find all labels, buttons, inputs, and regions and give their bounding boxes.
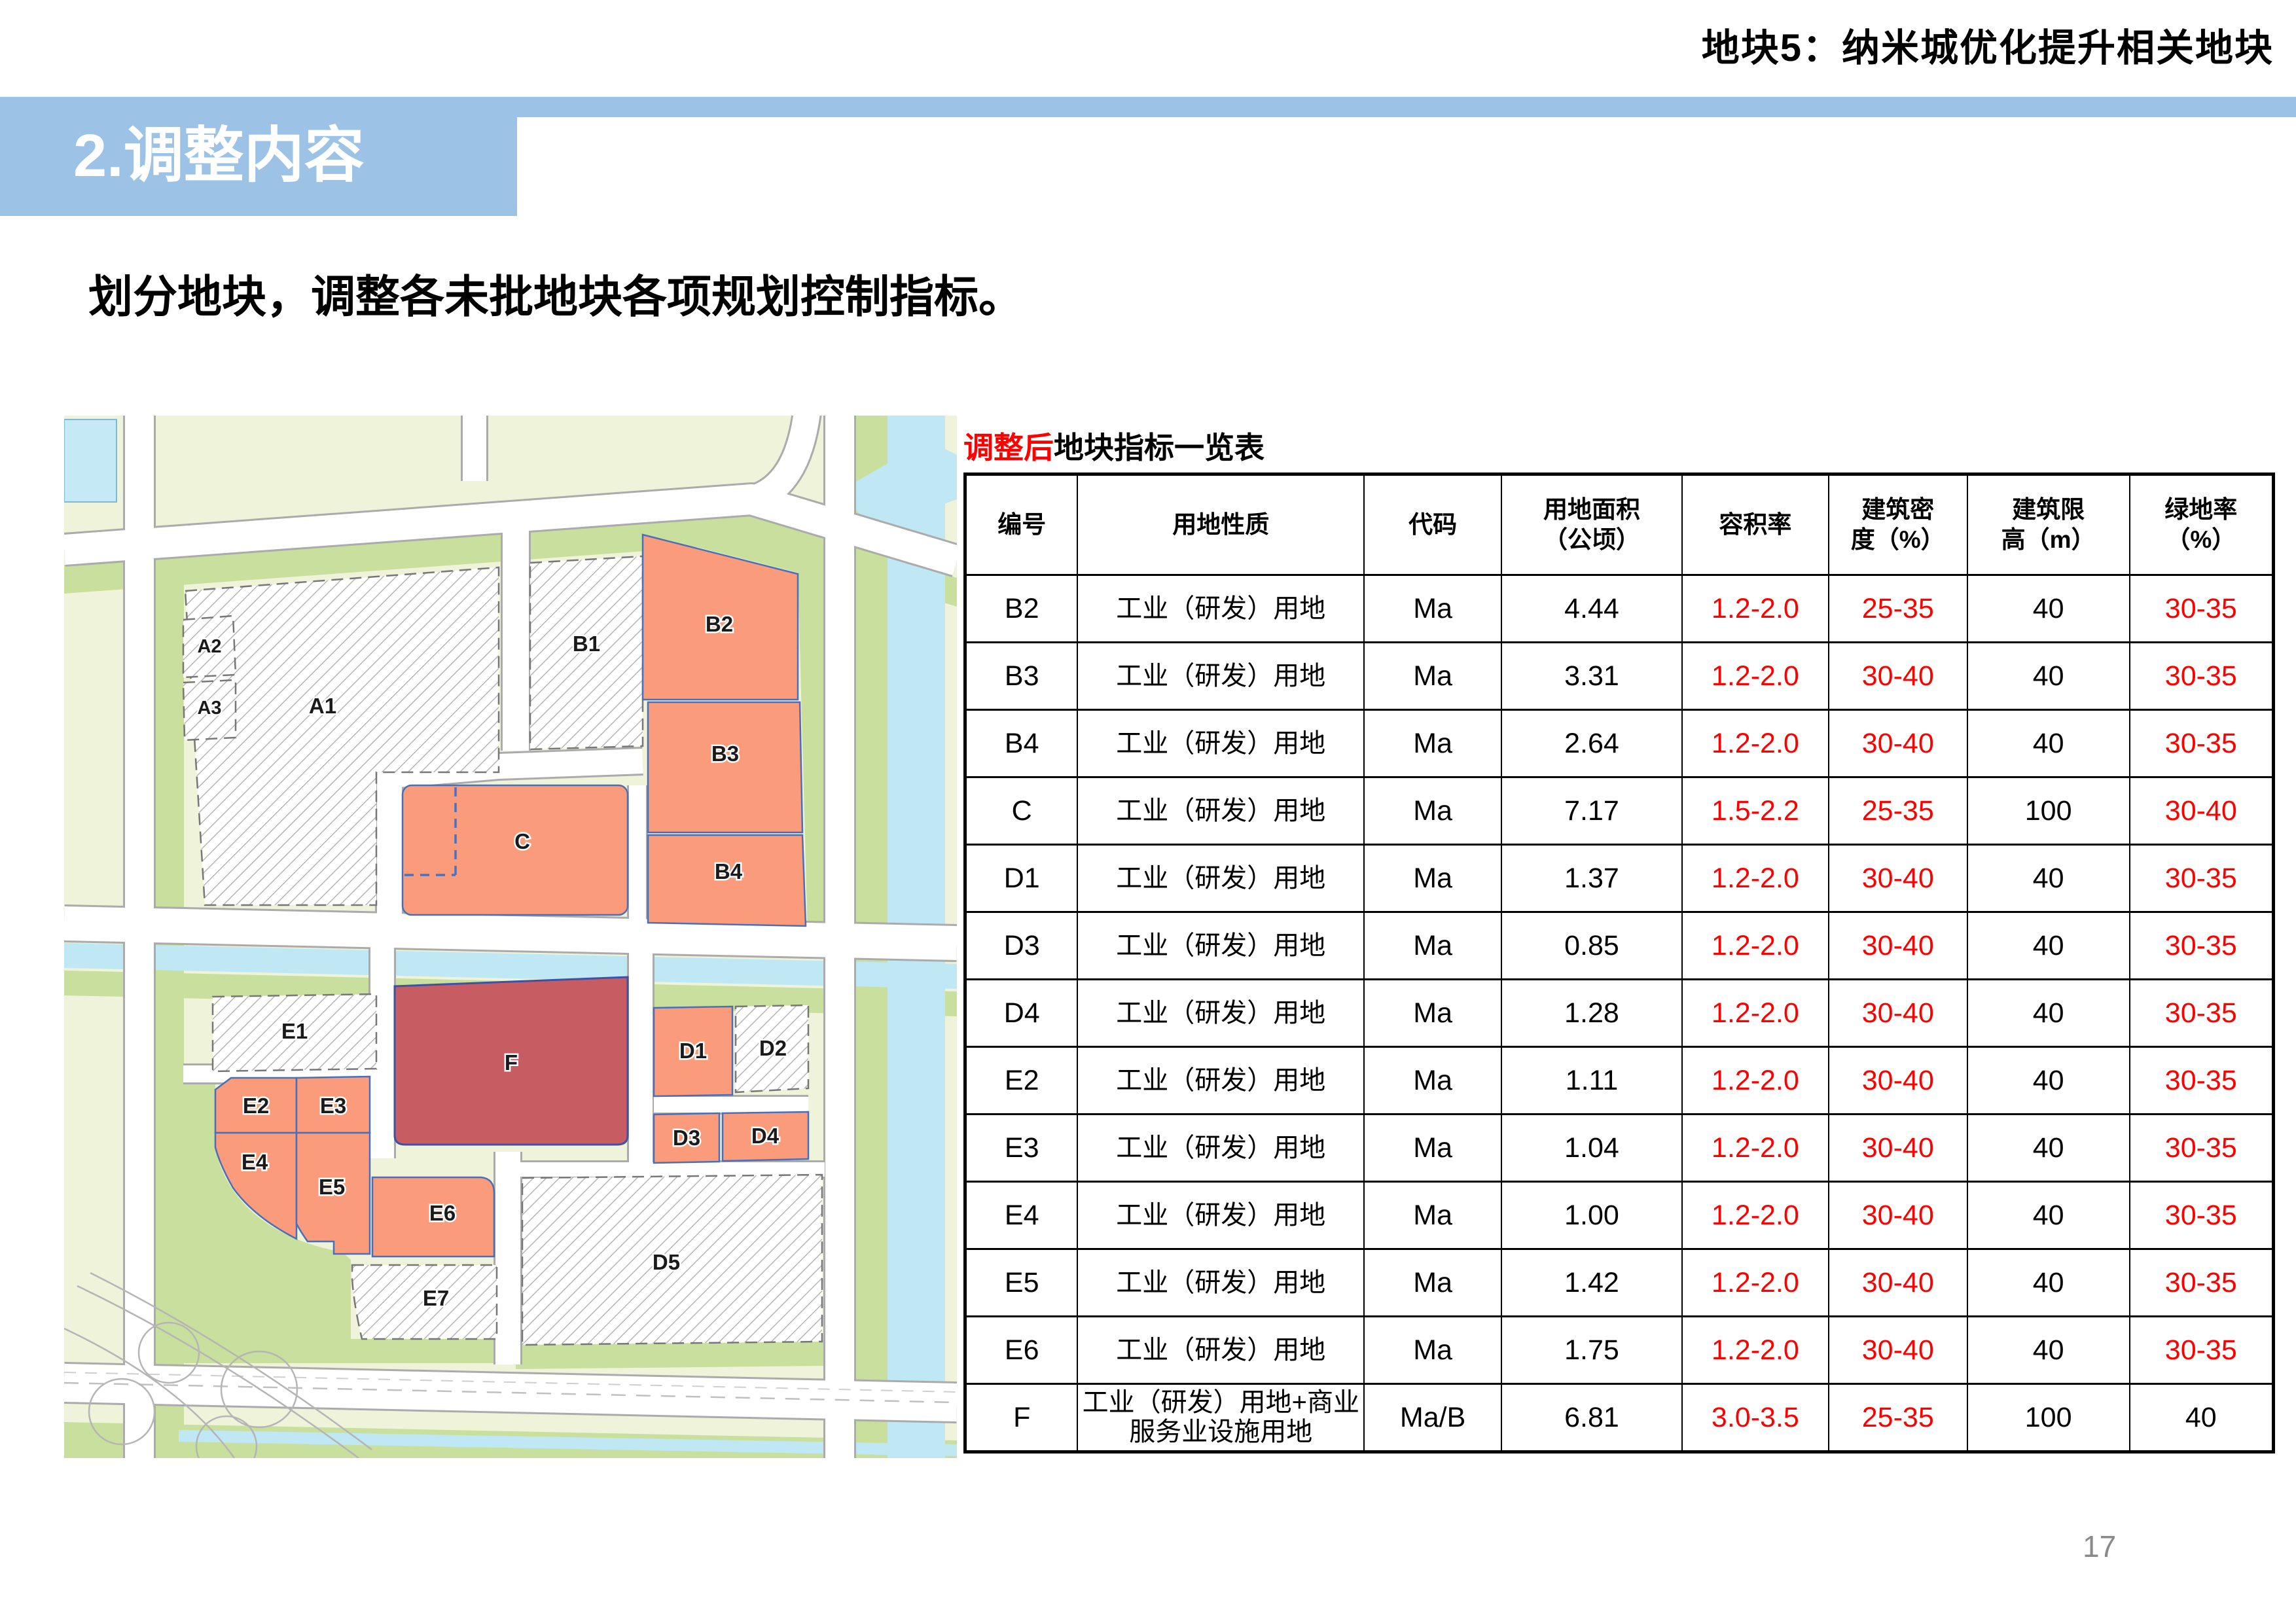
cell-C-density: 25-35	[1829, 777, 1967, 845]
page-number: 17	[2083, 1529, 2116, 1564]
cell-B4-use: 工业（研发）用地	[1077, 710, 1364, 777]
cell-E6-area: 1.75	[1501, 1317, 1682, 1384]
cell-E6-id: E6	[965, 1317, 1078, 1384]
cell-B3-id: B3	[965, 643, 1078, 710]
plot-label-a2: A2	[197, 636, 221, 657]
cell-B4-far: 1.2-2.0	[1682, 710, 1829, 777]
cell-D4-far: 1.2-2.0	[1682, 980, 1829, 1047]
cell-B3-far: 1.2-2.0	[1682, 643, 1829, 710]
cell-E3-far: 1.2-2.0	[1682, 1115, 1829, 1182]
table-row-D1: D1工业（研发）用地Ma1.371.2-2.030-404030-35	[965, 845, 2274, 912]
plot-label-e4: E4	[242, 1150, 268, 1174]
cell-E6-density: 30-40	[1829, 1317, 1967, 1384]
table-row-C: C工业（研发）用地Ma7.171.5-2.225-3510030-40	[965, 777, 2274, 845]
cell-B2-use: 工业（研发）用地	[1077, 575, 1364, 643]
cell-E3-id: E3	[965, 1115, 1078, 1182]
table-header-row: 编号 用地性质 代码 用地面积 （公顷） 容积率 建筑密 度（%） 建筑限 高（…	[965, 474, 2274, 575]
cell-C-use: 工业（研发）用地	[1077, 777, 1364, 845]
table-row-B2: B2工业（研发）用地Ma4.441.2-2.025-354030-35	[965, 575, 2274, 643]
cell-B2-code: Ma	[1364, 575, 1501, 643]
cell-B2-density: 25-35	[1829, 575, 1967, 643]
cell-E5-code: Ma	[1364, 1249, 1501, 1317]
plot-label-d2: D2	[759, 1036, 787, 1060]
cell-D1-far: 1.2-2.0	[1682, 845, 1829, 912]
cell-F-use: 工业（研发）用地+商业服务业设施用地	[1077, 1384, 1364, 1452]
col-header-id: 编号	[965, 474, 1078, 575]
table-title-rest: 地块指标一览表	[1054, 431, 1265, 465]
cell-E3-use: 工业（研发）用地	[1077, 1115, 1364, 1182]
cell-D3-height: 40	[1967, 912, 2130, 980]
cell-E2-use: 工业（研发）用地	[1077, 1047, 1364, 1115]
section-title: 2.调整内容	[0, 97, 517, 215]
cell-E6-green: 30-35	[2130, 1317, 2274, 1384]
cell-F-height: 100	[1967, 1384, 2130, 1452]
cell-E5-use: 工业（研发）用地	[1077, 1249, 1364, 1317]
table-title-highlight: 调整后	[963, 431, 1054, 465]
cell-E3-green: 30-35	[2130, 1115, 2274, 1182]
water-pond	[64, 419, 117, 502]
cell-E4-area: 1.00	[1501, 1182, 1682, 1249]
col-header-density: 建筑密 度（%）	[1829, 474, 1967, 575]
cell-E5-area: 1.42	[1501, 1249, 1682, 1317]
cell-B3-density: 30-40	[1829, 643, 1967, 710]
cell-D1-id: D1	[965, 845, 1078, 912]
col-header-green: 绿地率 （%）	[2130, 474, 2274, 575]
plot-b3	[648, 702, 802, 832]
cell-B3-green: 30-35	[2130, 643, 2274, 710]
cell-D4-density: 30-40	[1829, 980, 1967, 1047]
table-row-E3: E3工业（研发）用地Ma1.041.2-2.030-404030-35	[965, 1115, 2274, 1182]
cell-B3-code: Ma	[1364, 643, 1501, 710]
section-title-box: 2.调整内容	[0, 97, 517, 216]
cell-D3-use: 工业（研发）用地	[1077, 912, 1364, 980]
cell-B4-density: 30-40	[1829, 710, 1967, 777]
cell-E5-height: 40	[1967, 1249, 2130, 1317]
plot-label-d3: D3	[673, 1126, 700, 1150]
cell-F-code: Ma/B	[1364, 1384, 1501, 1452]
cell-D4-height: 40	[1967, 980, 2130, 1047]
cell-D1-height: 40	[1967, 845, 2130, 912]
cell-D4-area: 1.28	[1501, 980, 1682, 1047]
cell-E2-density: 30-40	[1829, 1047, 1967, 1115]
cell-E4-code: Ma	[1364, 1182, 1501, 1249]
cell-D3-density: 30-40	[1829, 912, 1967, 980]
col-header-area: 用地面积 （公顷）	[1501, 474, 1682, 575]
map-svg: A1 A2 A3 B1 B2 B3 B4 C D1 D2 D3 D4 D5 E1…	[64, 416, 957, 1458]
cell-E3-height: 40	[1967, 1115, 2130, 1182]
cell-C-height: 100	[1967, 777, 2130, 845]
table-row-E5: E5工业（研发）用地Ma1.421.2-2.030-404030-35	[965, 1249, 2274, 1317]
cell-E2-code: Ma	[1364, 1047, 1501, 1115]
plot-label-e7: E7	[423, 1286, 449, 1310]
cell-B2-height: 40	[1967, 575, 2130, 643]
cell-E6-far: 1.2-2.0	[1682, 1317, 1829, 1384]
cell-C-green: 30-40	[2130, 777, 2274, 845]
cell-E6-code: Ma	[1364, 1317, 1501, 1384]
table-row-E2: E2工业（研发）用地Ma1.111.2-2.030-404030-35	[965, 1047, 2274, 1115]
col-header-use: 用地性质	[1077, 474, 1364, 575]
slide: 地块5：纳米城优化提升相关地块 2.调整内容 划分地块，调整各未批地块各项规划控…	[0, 0, 2296, 1623]
col-header-far: 容积率	[1682, 474, 1829, 575]
cell-B3-height: 40	[1967, 643, 2130, 710]
cell-E3-code: Ma	[1364, 1115, 1501, 1182]
cell-B4-area: 2.64	[1501, 710, 1682, 777]
cell-B3-area: 3.31	[1501, 643, 1682, 710]
cell-D1-density: 30-40	[1829, 845, 1967, 912]
col-header-height: 建筑限 高（m）	[1967, 474, 2130, 575]
cell-B2-far: 1.2-2.0	[1682, 575, 1829, 643]
cell-E6-use: 工业（研发）用地	[1077, 1317, 1364, 1384]
cell-D3-id: D3	[965, 912, 1078, 980]
cell-B4-height: 40	[1967, 710, 2130, 777]
cell-D4-id: D4	[965, 980, 1078, 1047]
cell-E3-area: 1.04	[1501, 1115, 1682, 1182]
cell-D3-green: 30-35	[2130, 912, 2274, 980]
cell-D3-far: 1.2-2.0	[1682, 912, 1829, 980]
plot-label-a3: A3	[197, 698, 221, 719]
cell-D4-use: 工业（研发）用地	[1077, 980, 1364, 1047]
cell-D4-code: Ma	[1364, 980, 1501, 1047]
cell-B3-use: 工业（研发）用地	[1077, 643, 1364, 710]
land-use-map: A1 A2 A3 B1 B2 B3 B4 C D1 D2 D3 D4 D5 E1…	[64, 416, 957, 1458]
cell-C-area: 7.17	[1501, 777, 1682, 845]
cell-F-id: F	[965, 1384, 1078, 1452]
plot-label-c: C	[514, 829, 530, 853]
plot-label-a1: A1	[309, 694, 336, 718]
indicator-table: 编号 用地性质 代码 用地面积 （公顷） 容积率 建筑密 度（%） 建筑限 高（…	[963, 473, 2275, 1454]
cell-E4-far: 1.2-2.0	[1682, 1182, 1829, 1249]
cell-E4-green: 30-35	[2130, 1182, 2274, 1249]
cell-C-code: Ma	[1364, 777, 1501, 845]
cell-E2-green: 30-35	[2130, 1047, 2274, 1115]
plot-label-d5: D5	[653, 1250, 680, 1274]
slide-header-title: 地块5：纳米城优化提升相关地块	[1702, 17, 2274, 72]
plot-label-e1: E1	[281, 1019, 308, 1043]
table-row-D3: D3工业（研发）用地Ma0.851.2-2.030-404030-35	[965, 912, 2274, 980]
cell-E4-height: 40	[1967, 1182, 2130, 1249]
cell-E2-height: 40	[1967, 1047, 2130, 1115]
plot-label-b3: B3	[711, 741, 739, 766]
cell-E4-use: 工业（研发）用地	[1077, 1182, 1364, 1249]
table-row-F: F工业（研发）用地+商业服务业设施用地Ma/B6.813.0-3.525-351…	[965, 1384, 2274, 1452]
col-header-code: 代码	[1364, 474, 1501, 575]
table-row-B3: B3工业（研发）用地Ma3.311.2-2.030-404030-35	[965, 643, 2274, 710]
plot-label-b4: B4	[715, 859, 743, 883]
cell-E5-id: E5	[965, 1249, 1078, 1317]
cell-D1-green: 30-35	[2130, 845, 2274, 912]
cell-E2-id: E2	[965, 1047, 1078, 1115]
cell-E2-area: 1.11	[1501, 1047, 1682, 1115]
table-row-E4: E4工业（研发）用地Ma1.001.2-2.030-404030-35	[965, 1182, 2274, 1249]
cell-E3-density: 30-40	[1829, 1115, 1967, 1182]
cell-B4-code: Ma	[1364, 710, 1501, 777]
cell-D1-area: 1.37	[1501, 845, 1682, 912]
plot-label-d4: D4	[751, 1124, 780, 1148]
plot-label-f: F	[505, 1050, 518, 1075]
table-row-E6: E6工业（研发）用地Ma1.751.2-2.030-404030-35	[965, 1317, 2274, 1384]
body-text: 划分地块，调整各未批地块各项规划控制指标。	[88, 260, 1023, 325]
plot-label-b1: B1	[573, 632, 600, 656]
cell-D3-code: Ma	[1364, 912, 1501, 980]
plot-label-e3: E3	[320, 1094, 346, 1118]
cell-D3-area: 0.85	[1501, 912, 1682, 980]
cell-E2-far: 1.2-2.0	[1682, 1047, 1829, 1115]
cell-D1-code: Ma	[1364, 845, 1501, 912]
table-title: 调整后地块指标一览表	[963, 424, 1265, 467]
cell-B2-id: B2	[965, 575, 1078, 643]
cell-C-id: C	[965, 777, 1078, 845]
cell-B2-green: 30-35	[2130, 575, 2274, 643]
cell-D1-use: 工业（研发）用地	[1077, 845, 1364, 912]
cell-C-far: 1.5-2.2	[1682, 777, 1829, 845]
plot-label-d1: D1	[679, 1039, 707, 1063]
cell-F-density: 25-35	[1829, 1384, 1967, 1452]
plot-label-b2: B2	[706, 612, 733, 636]
cell-F-area: 6.81	[1501, 1384, 1682, 1452]
table-container: 编号 用地性质 代码 用地面积 （公顷） 容积率 建筑密 度（%） 建筑限 高（…	[963, 473, 2275, 1454]
cell-E6-height: 40	[1967, 1317, 2130, 1384]
cell-E5-far: 1.2-2.0	[1682, 1249, 1829, 1317]
cell-B2-area: 4.44	[1501, 575, 1682, 643]
cell-E5-density: 30-40	[1829, 1249, 1967, 1317]
plot-label-e2: E2	[243, 1094, 269, 1118]
table-row-B4: B4工业（研发）用地Ma2.641.2-2.030-404030-35	[965, 710, 2274, 777]
cell-D4-green: 30-35	[2130, 980, 2274, 1047]
table-row-D4: D4工业（研发）用地Ma1.281.2-2.030-404030-35	[965, 980, 2274, 1047]
table-body: B2工业（研发）用地Ma4.441.2-2.025-354030-35B3工业（…	[965, 575, 2274, 1452]
cell-E4-density: 30-40	[1829, 1182, 1967, 1249]
cell-F-far: 3.0-3.5	[1682, 1384, 1829, 1452]
plot-label-e6: E6	[429, 1201, 456, 1225]
cell-B4-id: B4	[965, 710, 1078, 777]
plot-label-e5: E5	[319, 1175, 345, 1199]
cell-E4-id: E4	[965, 1182, 1078, 1249]
cell-E5-green: 30-35	[2130, 1249, 2274, 1317]
cell-F-green: 40	[2130, 1384, 2274, 1452]
cell-B4-green: 30-35	[2130, 710, 2274, 777]
